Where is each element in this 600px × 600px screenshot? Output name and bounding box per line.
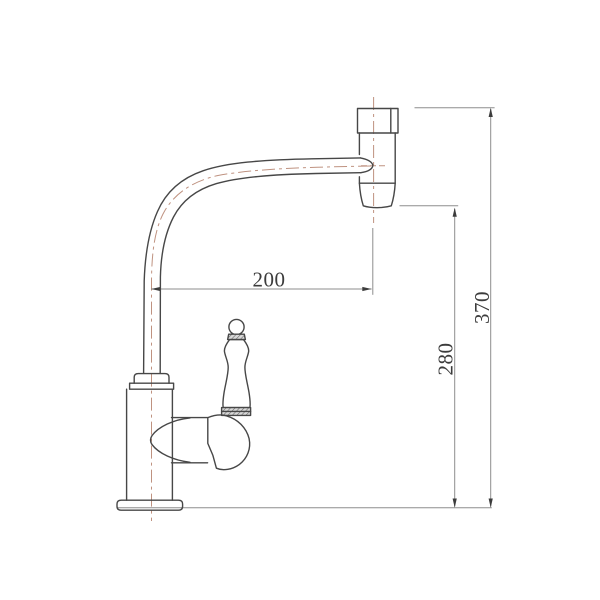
dim-200-label: 200 <box>253 268 286 292</box>
handle-neck-ring <box>228 334 246 339</box>
drawing-background <box>0 0 600 600</box>
faucet-dimension-drawing: 200 280 370 <box>0 0 600 600</box>
dim-280-label: 280 <box>434 343 458 376</box>
technical-drawing-page: 200 280 370 <box>0 0 600 600</box>
dim-370-label: 370 <box>470 291 494 324</box>
